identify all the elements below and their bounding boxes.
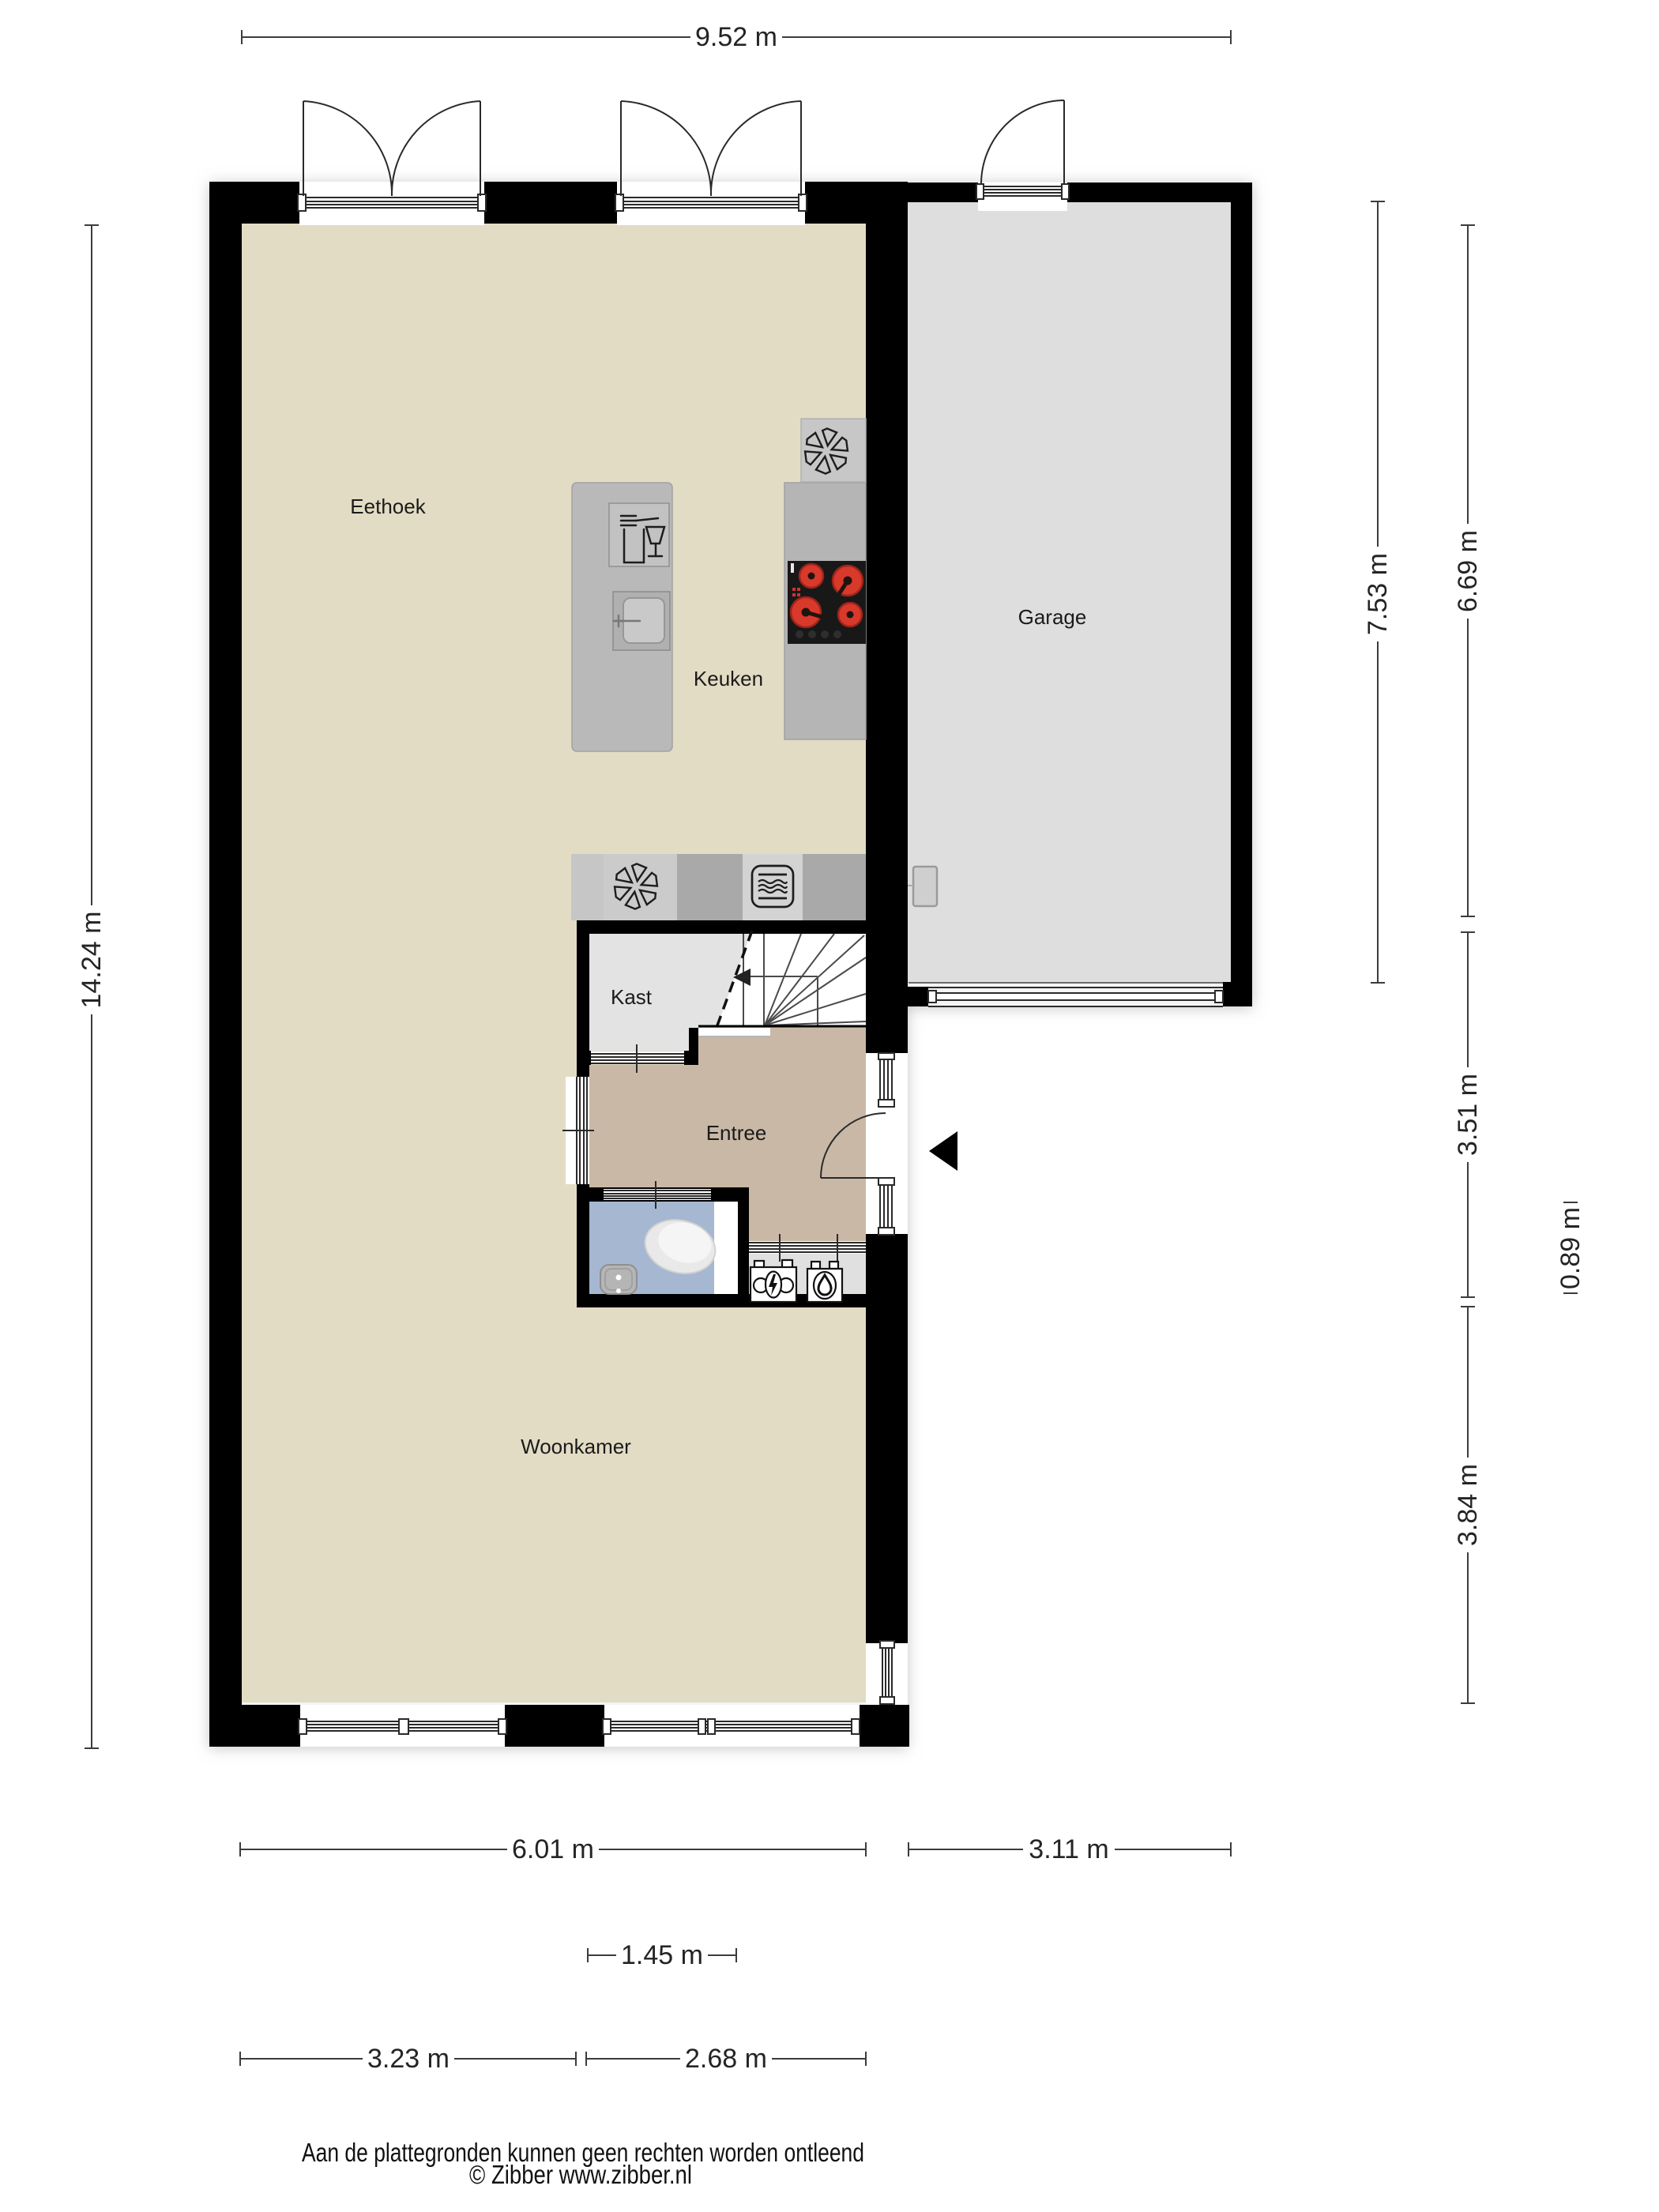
svg-text:9.52 m: 9.52 m: [695, 22, 777, 52]
svg-text:0.89 m: 0.89 m: [1556, 1207, 1586, 1289]
svg-text:3.84 m: 3.84 m: [1453, 1464, 1483, 1546]
svg-text:3.11 m: 3.11 m: [1029, 1834, 1108, 1864]
svg-text:3.23 m: 3.23 m: [367, 2044, 450, 2074]
svg-text:Entree: Entree: [706, 1121, 767, 1145]
svg-text:6.01 m: 6.01 m: [512, 1834, 594, 1864]
svg-text:2.68 m: 2.68 m: [685, 2044, 767, 2074]
svg-text:14.24 m: 14.24 m: [77, 912, 107, 1009]
svg-text:Kast: Kast: [611, 985, 653, 1009]
svg-text:Garage: Garage: [1018, 605, 1087, 629]
svg-text:3.51 m: 3.51 m: [1453, 1074, 1483, 1156]
svg-text:Eethoek: Eethoek: [350, 495, 426, 518]
svg-text:1.45 m: 1.45 m: [621, 1940, 703, 1970]
svg-text:Keuken: Keuken: [694, 667, 763, 690]
svg-text:© Zibber www.zibber.nl: © Zibber www.zibber.nl: [469, 2160, 692, 2189]
svg-text:6.69 m: 6.69 m: [1453, 530, 1483, 612]
svg-text:7.53 m: 7.53 m: [1363, 553, 1393, 635]
svg-text:Woonkamer: Woonkamer: [521, 1435, 631, 1458]
